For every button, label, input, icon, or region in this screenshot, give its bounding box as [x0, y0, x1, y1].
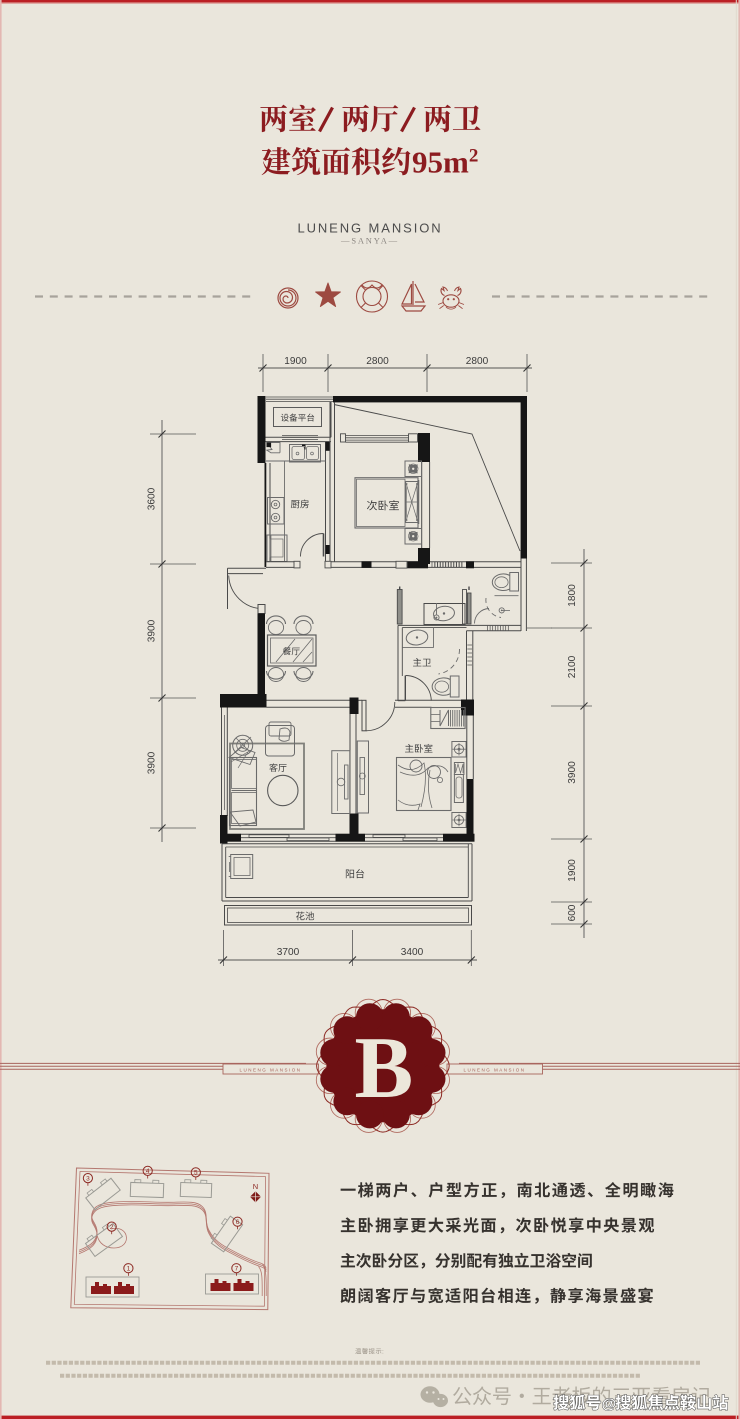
svg-text:1: 1 — [127, 1266, 131, 1273]
svg-text:N: N — [253, 1182, 258, 1191]
svg-text:3900: 3900 — [147, 751, 158, 774]
svg-text:1900: 1900 — [284, 356, 307, 367]
svg-text:6: 6 — [236, 1219, 240, 1226]
svg-text:LUNENG MANSION: LUNENG MANSION — [239, 1067, 301, 1072]
svg-text:3700: 3700 — [277, 947, 300, 958]
svg-text:3900: 3900 — [147, 619, 158, 642]
svg-text:—SANYA—: —SANYA— — [340, 236, 399, 246]
svg-text:7: 7 — [235, 1266, 239, 1273]
svg-text:@: @ — [602, 1396, 617, 1413]
svg-text:600: 600 — [567, 904, 578, 921]
svg-text:2100: 2100 — [567, 655, 578, 678]
svg-text:2: 2 — [110, 1224, 114, 1231]
svg-text:B: B — [355, 1020, 414, 1117]
svg-text:4: 4 — [146, 1168, 150, 1175]
svg-text:5: 5 — [194, 1170, 198, 1177]
svg-text:1900: 1900 — [567, 859, 578, 882]
svg-text:2800: 2800 — [366, 356, 389, 367]
svg-text:3400: 3400 — [401, 947, 424, 958]
svg-text:1800: 1800 — [567, 584, 578, 607]
svg-text:95m2: 95m2 — [412, 145, 478, 180]
svg-text:LUNENG MANSION: LUNENG MANSION — [463, 1067, 525, 1072]
svg-text:3600: 3600 — [147, 487, 158, 510]
svg-text:3900: 3900 — [567, 761, 578, 784]
svg-text:3: 3 — [86, 1175, 90, 1182]
svg-text:LUNENG MANSION: LUNENG MANSION — [297, 221, 442, 236]
svg-text:2800: 2800 — [466, 356, 489, 367]
svg-text::: : — [382, 1349, 384, 1356]
